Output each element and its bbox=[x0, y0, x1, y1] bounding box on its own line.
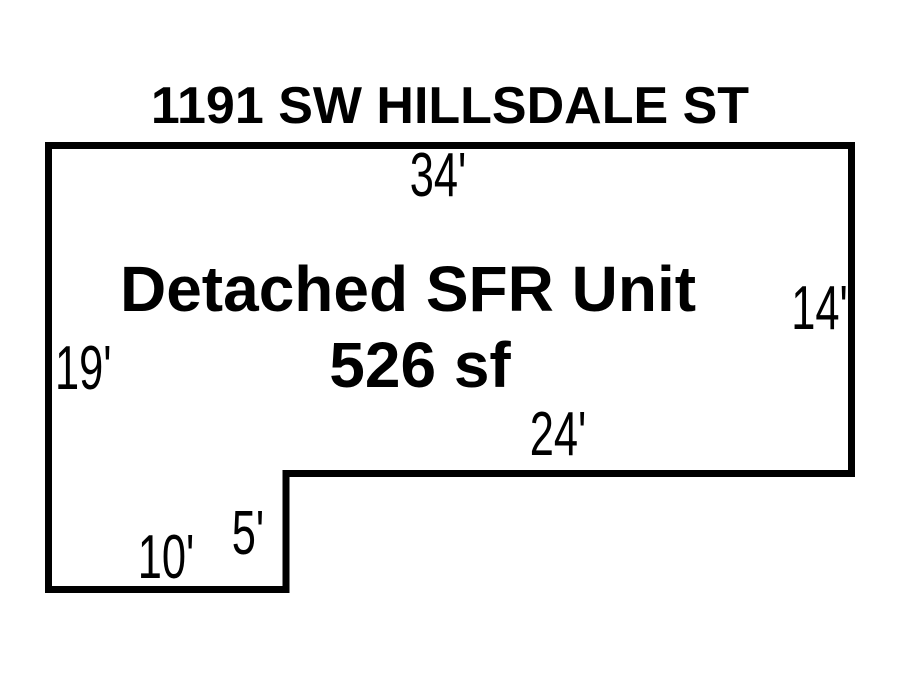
unit-type-label: Detached SFR Unit bbox=[120, 257, 696, 321]
dimension-left: 19' bbox=[55, 338, 112, 400]
address-title: 1191 SW HILLSDALE ST bbox=[151, 80, 749, 132]
dimension-bottom-left: 10' bbox=[138, 527, 195, 589]
dimension-notch: 5' bbox=[232, 503, 264, 565]
dimension-right: 14' bbox=[791, 278, 848, 340]
property-sketch: 1191 SW HILLSDALE ST Detached SFR Unit 5… bbox=[0, 0, 900, 675]
dimension-top: 34' bbox=[410, 145, 467, 207]
dimension-bottom-right: 24' bbox=[530, 404, 587, 466]
area-label: 526 sf bbox=[329, 333, 510, 397]
